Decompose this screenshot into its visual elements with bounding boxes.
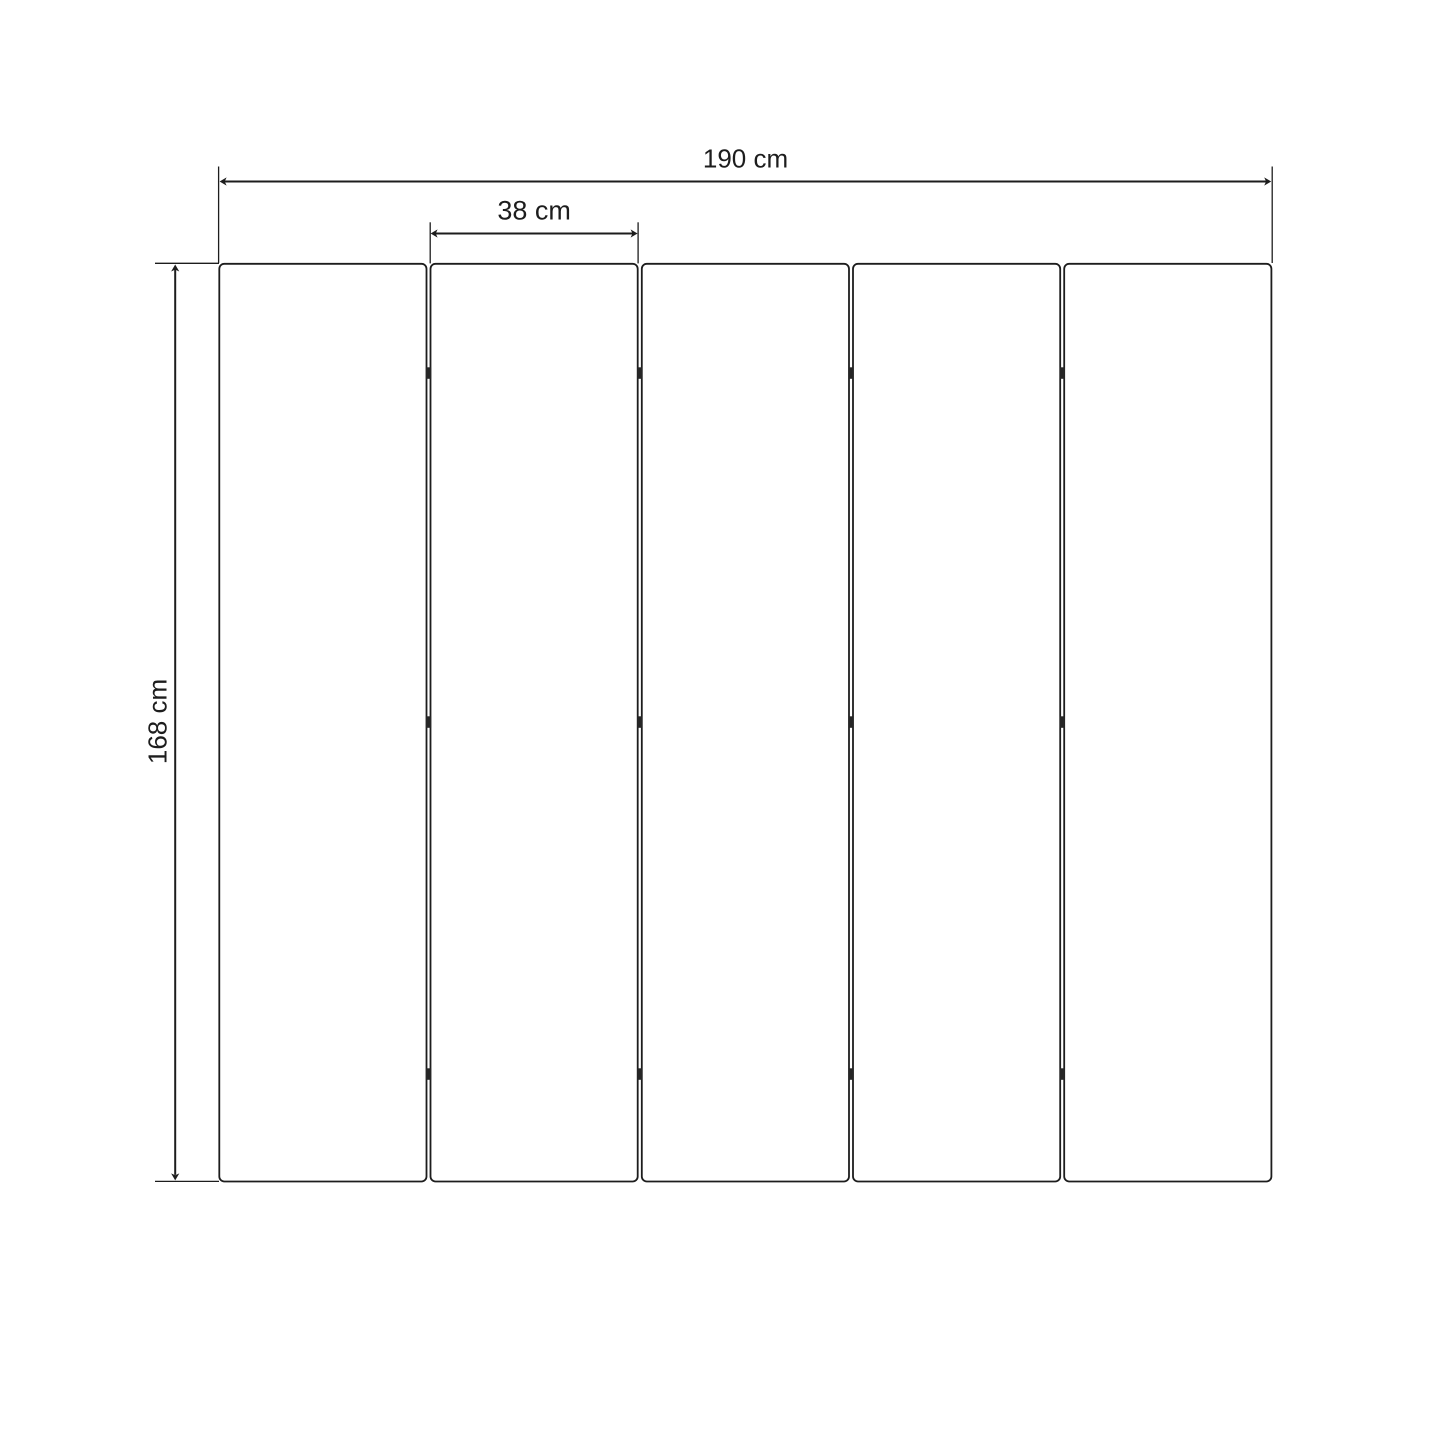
svg-text:38 cm: 38 cm [497,195,571,225]
svg-text:190 cm: 190 cm [703,144,788,174]
svg-text:168 cm: 168 cm [143,679,173,764]
